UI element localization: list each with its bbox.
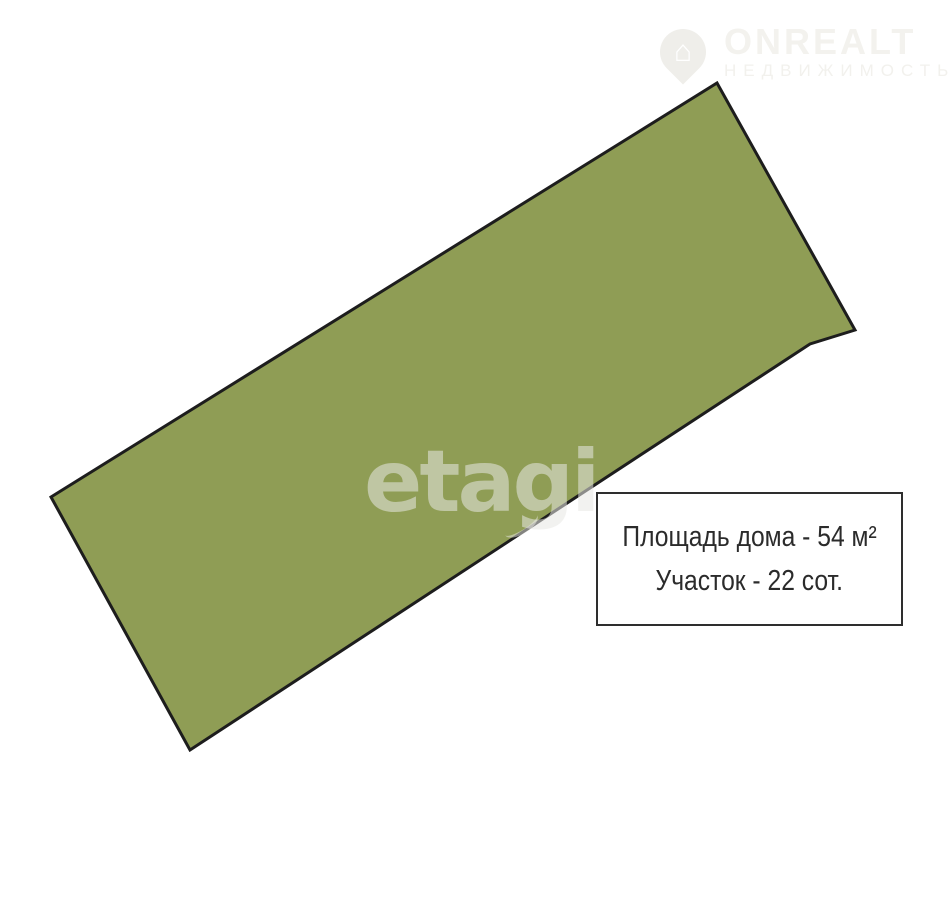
- onrealt-logo: ⌂ ONREALT НЕДВИЖИМОСТЬ: [660, 24, 952, 79]
- logo-title: ONREALT: [724, 24, 952, 60]
- land-plot-polygon: [51, 83, 855, 750]
- etagi-watermark: etagi: [364, 439, 598, 525]
- house-icon: ⌂: [674, 37, 692, 67]
- plot-info-box: Площадь дома - 54 м² Участок - 22 сот.: [596, 492, 903, 626]
- land-area-text: Участок - 22 сот.: [656, 567, 843, 596]
- logo-subtitle: НЕДВИЖИМОСТЬ: [724, 62, 952, 79]
- map-pin-house-icon: ⌂: [650, 19, 715, 84]
- plot-plan-image: ⌂ ONREALT НЕДВИЖИМОСТЬ etagi Площадь дом…: [0, 0, 952, 902]
- house-area-text: Площадь дома - 54 м²: [622, 523, 876, 552]
- onrealt-logo-text: ONREALT НЕДВИЖИМОСТЬ: [724, 24, 952, 79]
